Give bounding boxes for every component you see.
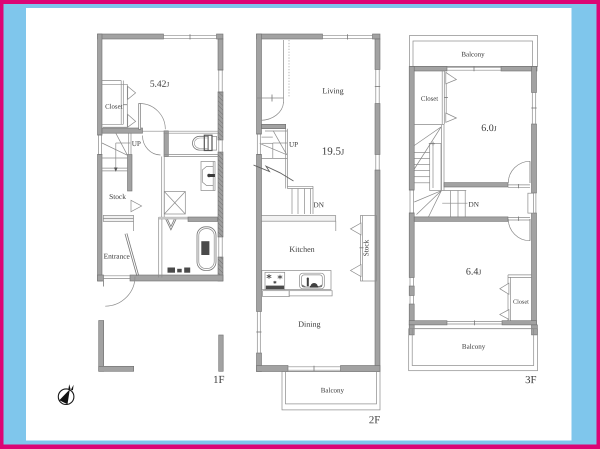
svg-text:Closet: Closet bbox=[105, 104, 122, 111]
svg-text:1F: 1F bbox=[213, 374, 224, 386]
svg-text:Dining: Dining bbox=[298, 320, 320, 329]
svg-text:Balcony: Balcony bbox=[462, 343, 486, 351]
svg-text:DN: DN bbox=[313, 201, 324, 209]
svg-text:UP: UP bbox=[132, 140, 141, 148]
svg-text:DN: DN bbox=[468, 201, 479, 209]
svg-text:6.0J: 6.0J bbox=[481, 123, 497, 134]
svg-text:2F: 2F bbox=[369, 414, 380, 426]
svg-text:Balcony: Balcony bbox=[321, 386, 345, 394]
svg-text:Closet: Closet bbox=[421, 96, 438, 103]
svg-text:3F: 3F bbox=[525, 374, 536, 386]
svg-text:Entrance: Entrance bbox=[104, 252, 131, 261]
svg-text:UP: UP bbox=[289, 141, 298, 149]
svg-text:Stock: Stock bbox=[109, 192, 126, 201]
svg-text:Kitchen: Kitchen bbox=[289, 245, 314, 254]
svg-text:19.5J: 19.5J bbox=[322, 146, 345, 158]
svg-text:Closet: Closet bbox=[513, 299, 529, 306]
svg-text:6.4J: 6.4J bbox=[466, 267, 482, 278]
svg-text:Balcony: Balcony bbox=[461, 50, 485, 58]
svg-text:Stock: Stock bbox=[362, 239, 370, 256]
svg-text:5.42J: 5.42J bbox=[150, 80, 170, 90]
svg-text:Living: Living bbox=[322, 86, 343, 95]
